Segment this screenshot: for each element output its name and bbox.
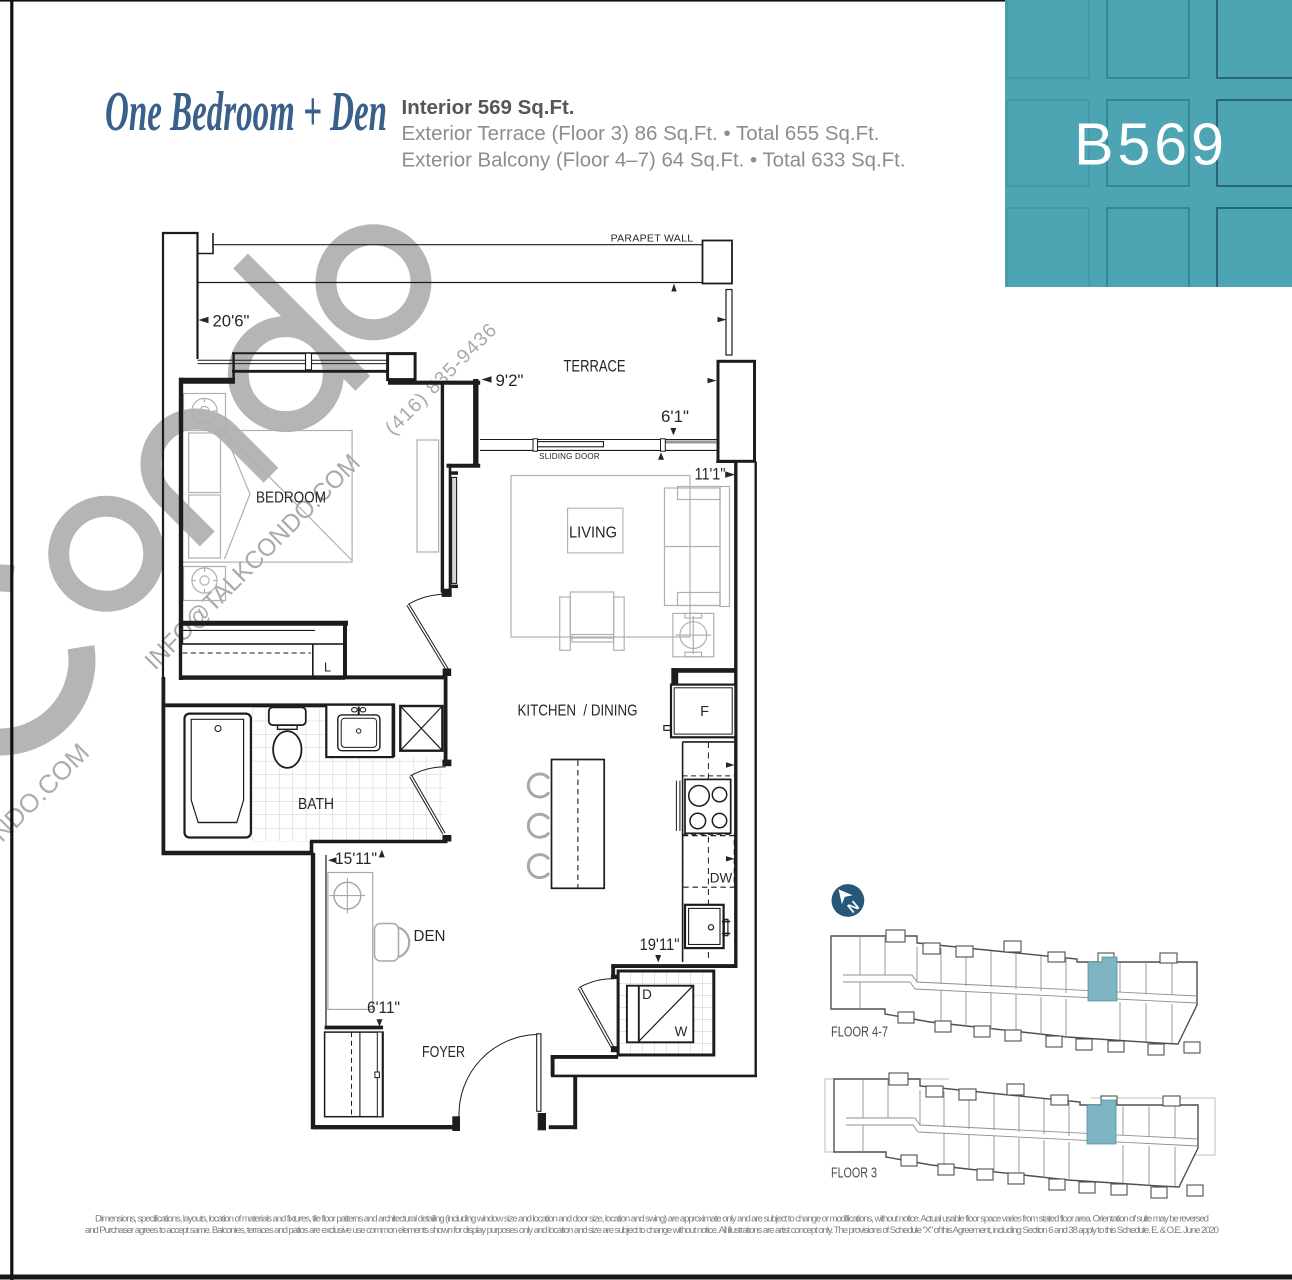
svg-text:LIVING: LIVING [569, 525, 617, 542]
svg-text:19'11": 19'11" [640, 935, 680, 954]
svg-text:Exterior Balcony (Floor 4–7) 6: Exterior Balcony (Floor 4–7) 64 Sq.Ft. •… [402, 150, 906, 172]
svg-text:DW: DW [710, 871, 733, 886]
svg-text:BATH: BATH [298, 796, 334, 813]
svg-text:Interior 569 Sq.Ft.: Interior 569 Sq.Ft. [402, 97, 575, 119]
svg-text:PARAPET WALL: PARAPET WALL [611, 233, 694, 245]
svg-text:Dimensions, specifications, la: Dimensions, specifications, layouts, loc… [95, 1214, 1209, 1225]
svg-text:W: W [675, 1024, 688, 1039]
svg-text:20'6": 20'6" [213, 312, 250, 331]
svg-text:FLOOR 3: FLOOR 3 [831, 1165, 877, 1182]
svg-text:FOYER: FOYER [422, 1044, 465, 1061]
svg-text:DEN: DEN [414, 928, 446, 945]
svg-text:TERRACE: TERRACE [564, 358, 626, 376]
svg-text:9'2": 9'2" [496, 371, 524, 390]
svg-text:D: D [642, 987, 652, 1002]
svg-text:6'1": 6'1" [661, 407, 689, 426]
svg-text:15'11": 15'11" [335, 849, 377, 868]
svg-text:6'11": 6'11" [367, 998, 400, 1017]
svg-text:L: L [324, 661, 331, 675]
svg-text:One Bedroom + Den: One Bedroom + Den [105, 81, 387, 143]
svg-text:B569: B569 [1074, 112, 1228, 178]
svg-text:KITCHEN / DINING: KITCHEN / DINING [518, 703, 638, 720]
svg-text:Exterior Terrace (Floor 3) 86: Exterior Terrace (Floor 3) 86 Sq.Ft. • T… [402, 123, 880, 145]
svg-text:11'1": 11'1" [695, 465, 726, 484]
svg-text:BEDROOM: BEDROOM [256, 490, 326, 507]
svg-text:and Purchaser agrees to accept: and Purchaser agrees to accept same. Bal… [85, 1225, 1219, 1236]
svg-text:F: F [700, 704, 709, 720]
svg-text:SLIDING DOOR: SLIDING DOOR [539, 452, 600, 461]
svg-text:FLOOR 4-7: FLOOR 4-7 [831, 1024, 888, 1041]
